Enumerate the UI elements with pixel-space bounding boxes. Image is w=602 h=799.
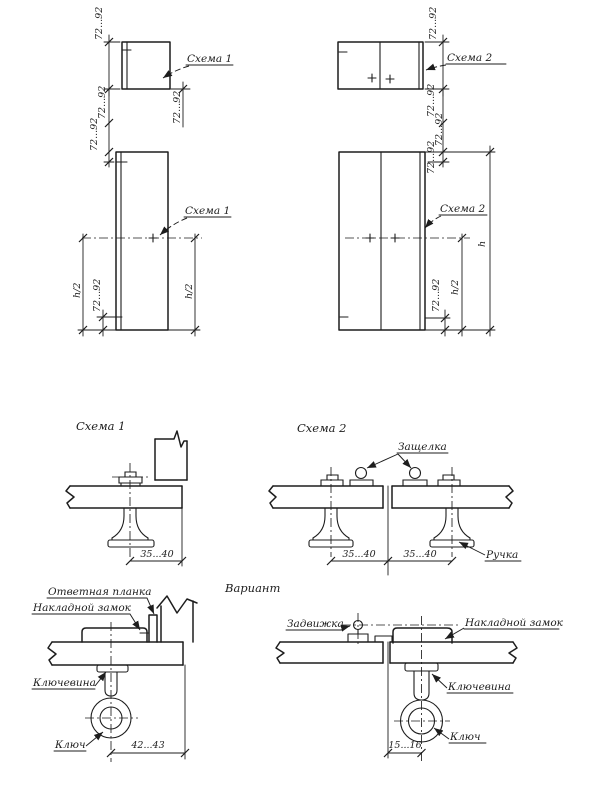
variant-title: Вариант <box>224 581 281 595</box>
label-key: Ключ <box>54 739 86 751</box>
dim-gap-upper: 72...92 <box>426 84 437 117</box>
dim-backset: 35...40 <box>140 549 173 560</box>
dim-half-right: h/2 <box>184 284 195 299</box>
drawing-canvas: 72...92 Схема 1 72...92 72...92 72...92 … <box>0 0 602 799</box>
dim-gap-lower: 72...92 <box>89 118 100 151</box>
label-rim-lock: Накладной замок <box>32 602 132 614</box>
dim-half: h/2 <box>450 280 461 295</box>
elevation-single-door: 72...92 Схема 1 72...92 72...92 72...92 … <box>72 7 233 336</box>
label-bolt: Задвижка <box>287 618 344 630</box>
dim-bottom-offset: 72...92 <box>431 279 442 312</box>
label-rim-lock: Накладной замок <box>464 617 564 629</box>
dim-half-left: h/2 <box>72 283 83 298</box>
callout-scheme2-door: Схема 2 <box>440 203 485 215</box>
dim-bottom-offset: 72...92 <box>92 279 103 312</box>
dim-under-transom: 72...92 <box>172 91 183 124</box>
detail-lock-variant: Задвижка Накладной замок Ключевина <box>276 613 564 764</box>
label-strike-plate: Ответная планка <box>48 586 151 598</box>
dim-offset: 42...43 <box>130 740 164 751</box>
dim-door-top: 72...92 <box>426 141 437 174</box>
detail-scheme1: Схема 1 35...40 <box>66 419 187 566</box>
detail1-title: Схема 1 <box>76 419 125 433</box>
detail-lock-front: Ответная планка Накладной замок Ключевин… <box>32 586 197 762</box>
dim-transom-height: 72...92 <box>428 7 439 40</box>
label-keyhole: Ключевина <box>447 681 511 693</box>
label-latch: Защелка <box>398 441 447 453</box>
technical-drawing-page: 72...92 Схема 1 72...92 72...92 72...92 … <box>0 0 602 799</box>
dim-full-height: h <box>477 241 488 247</box>
elevation-double-door: 72...92 Схема 2 72...92 72...92 72...92 … <box>338 7 506 336</box>
callout-scheme1-door: Схема 1 <box>185 205 230 217</box>
callout-scheme1-transom: Схема 1 <box>187 53 232 65</box>
detail-scheme2: Схема 2 Защелка <box>269 421 521 575</box>
label-handle: Ручка <box>485 549 518 561</box>
dim-offset: 15...16 <box>388 740 421 751</box>
detail2-title: Схема 2 <box>297 421 346 435</box>
callout-scheme2-transom: Схема 2 <box>447 52 492 64</box>
label-keyhole: Ключевина <box>32 677 96 689</box>
dim-gap-upper: 72...92 <box>97 86 108 119</box>
dim-right: 35...40 <box>403 549 436 560</box>
label-key: Ключ <box>449 731 481 743</box>
dim-transom-height: 72...92 <box>94 7 105 40</box>
dim-left: 35...40 <box>342 549 375 560</box>
